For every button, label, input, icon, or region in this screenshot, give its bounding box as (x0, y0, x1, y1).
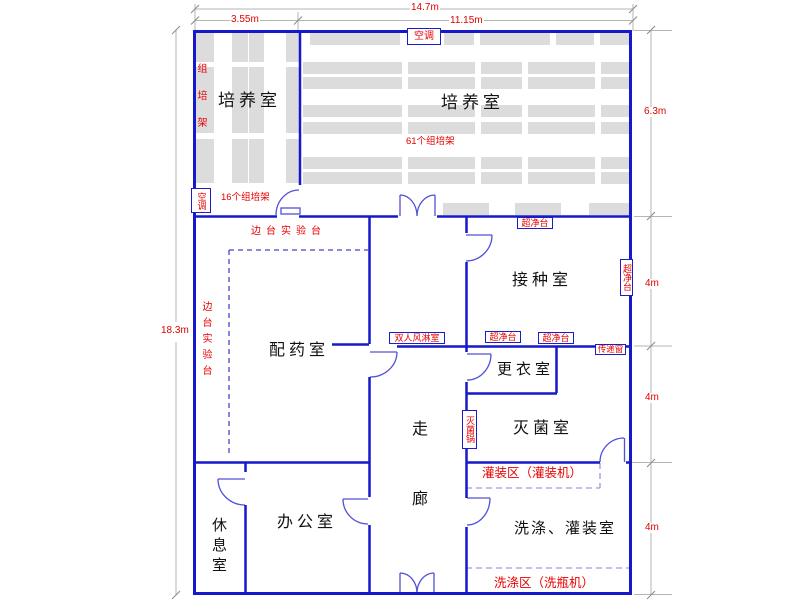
racks-61-label: 61个组培架 (406, 137, 455, 147)
dim-total-width: 14.7m (410, 3, 440, 13)
dim-right-seg-3: 4m (644, 523, 660, 533)
sterilizer-label: 灭菌锅 (462, 410, 477, 449)
room-label-culture-right: 培养室 (441, 94, 504, 111)
racks-16-label: 16个组培架 (221, 193, 270, 203)
door-culture-rooms (276, 190, 300, 215)
air-shower-label: 双人风淋室 (389, 332, 445, 344)
filling-zone-label: 灌装区（灌装机） (482, 467, 582, 480)
door-corridor-double-bottom (400, 573, 434, 593)
door-corridor-junction (370, 352, 397, 377)
clean-bench-bottom-1: 超净台 (485, 331, 521, 343)
floor-plan-linework (0, 0, 800, 600)
door-culture-double-top (400, 195, 435, 216)
aircon-label-left: 空调 (191, 188, 211, 213)
room-label-sterilization: 灭菌室 (513, 421, 573, 437)
room-label-preparation: 配药室 (269, 343, 329, 359)
door-changing (467, 354, 491, 380)
dim-right-seg-1: 4m (644, 279, 660, 289)
clean-bench-top: 超净台 (517, 217, 553, 229)
room-label-corridor: 走廊 (409, 420, 425, 560)
washing-zone-label: 洗涤区（洗瓶机） (494, 577, 594, 590)
dim-total-height: 18.3m (160, 326, 190, 336)
door-sterilization (600, 438, 625, 462)
room-label-changing: 更衣室 (497, 363, 554, 378)
aircon-label-top: 空调 (407, 28, 441, 45)
room-label-culture-left: 培养室 (218, 92, 281, 109)
room-label-office: 办公室 (277, 515, 337, 531)
room-label-wash-fill: 洗涤、灌装室 (514, 522, 616, 537)
door-wash-fill (467, 498, 490, 525)
clean-bench-bottom-2: 超净台 (538, 332, 574, 344)
dim-right-seg-2: 4m (644, 393, 660, 403)
pass-window-label: 传递窗 (595, 344, 626, 355)
room-label-inoculation: 接种室 (512, 273, 572, 289)
door-office (343, 499, 368, 524)
rack-label-left: 组培架 (195, 63, 205, 144)
door-inoculation (466, 235, 492, 261)
bench-label-left: 边台实验台 (200, 301, 210, 381)
bench-label-top: 边台实验台 (251, 227, 326, 237)
room-label-rest: 休息室 (210, 517, 225, 577)
dim-left-width: 3.55m (230, 15, 260, 25)
shelf-racks (196, 33, 631, 215)
clean-bench-right: 超净台 (620, 259, 633, 296)
door-rest (218, 479, 245, 505)
dim-right-width: 11.15m (449, 16, 484, 26)
dim-right-seg-0: 6.3m (643, 107, 667, 117)
floor-plan: 培养室 培养室 接种室 配药室 更衣室 灭菌室 走廊 办公室 休息室 洗涤、灌装… (0, 0, 800, 600)
